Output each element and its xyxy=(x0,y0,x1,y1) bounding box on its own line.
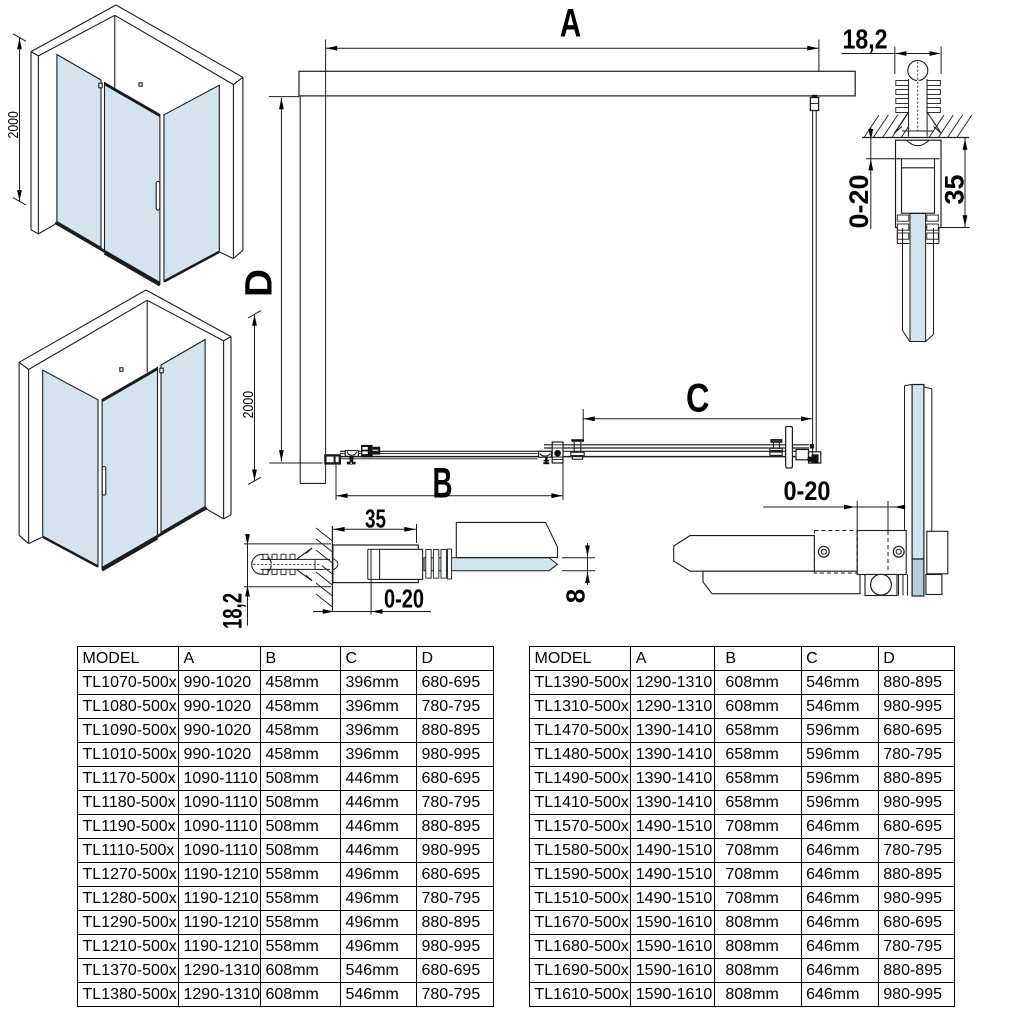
svg-text:0-20: 0-20 xyxy=(784,476,831,506)
svg-text:2000: 2000 xyxy=(240,391,257,419)
svg-text:18,2: 18,2 xyxy=(218,593,248,629)
svg-text:0-20: 0-20 xyxy=(844,174,874,228)
svg-text:0-20: 0-20 xyxy=(384,584,424,614)
svg-text:C: C xyxy=(686,376,710,420)
svg-text:35: 35 xyxy=(940,174,970,204)
svg-text:D: D xyxy=(239,269,281,297)
svg-text:8: 8 xyxy=(561,589,591,603)
svg-text:18,2: 18,2 xyxy=(843,23,888,54)
svg-text:35: 35 xyxy=(365,504,386,534)
svg-text:A: A xyxy=(560,1,582,45)
svg-text:2000: 2000 xyxy=(5,111,22,139)
svg-text:B: B xyxy=(433,459,453,507)
